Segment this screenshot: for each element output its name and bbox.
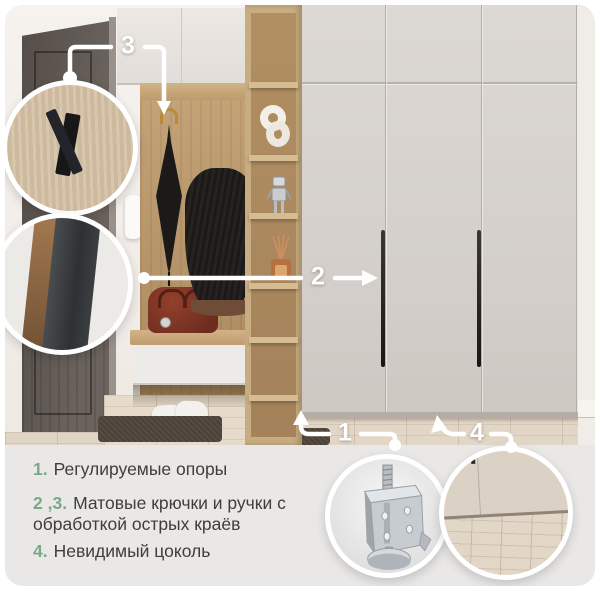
umbrella-tip xyxy=(168,272,170,286)
wardrobe xyxy=(302,5,578,418)
wood-soffit xyxy=(140,83,245,100)
ring-bottom xyxy=(266,121,290,147)
callout-label-2: 2 xyxy=(311,263,325,292)
callout-label-3: 3 xyxy=(121,32,135,61)
feature-number: 1. xyxy=(33,459,48,479)
cabinet-seam xyxy=(181,8,182,83)
wardrobe-handle-right xyxy=(477,230,481,367)
wardrobe-seam xyxy=(576,5,577,418)
brass-hook xyxy=(160,108,178,124)
right-wall xyxy=(578,5,595,445)
diffuser-label xyxy=(275,265,287,277)
feature-item: 1.Регулируемые опоры xyxy=(33,459,333,480)
hallway-photo xyxy=(5,5,595,445)
shelf xyxy=(249,283,298,289)
coat-hem xyxy=(191,300,253,316)
shelf xyxy=(249,337,298,343)
product-card: 1.Регулируемые опоры 2 ,3.Матовые крючки… xyxy=(5,5,595,586)
door-bottom-edge xyxy=(439,446,573,520)
doormat xyxy=(98,416,222,442)
adjustable-leg-image xyxy=(330,461,444,575)
feature-text: Регулируемые опоры xyxy=(54,459,228,479)
shelf-back xyxy=(251,13,296,437)
feature-text: Невидимый цоколь xyxy=(54,541,211,561)
umbrella xyxy=(150,108,190,308)
baseboard xyxy=(578,400,595,418)
umbrella-canopy xyxy=(152,124,186,274)
callout-label-1: 1 xyxy=(338,419,352,448)
intercom-device xyxy=(125,195,141,239)
shelf xyxy=(249,395,298,401)
feature-item: 2 ,3.Матовые крючки и ручки с обработкой… xyxy=(33,493,333,535)
plinth-closeup-inset xyxy=(439,446,573,580)
feature-item: 4.Невидимый цоколь xyxy=(33,541,333,562)
shelf-column xyxy=(245,5,302,445)
handle-notch xyxy=(470,450,475,464)
reed-diffuser xyxy=(263,233,299,283)
info-panel: 1.Регулируемые опоры 2 ,3.Матовые крючки… xyxy=(5,445,595,586)
door-seam xyxy=(476,446,481,515)
wardrobe-handle-left xyxy=(381,230,385,367)
shelf xyxy=(249,82,298,88)
feature-number: 2 ,3. xyxy=(33,493,67,513)
bench-drawer xyxy=(133,345,255,385)
hook-closeup-inset xyxy=(5,80,138,216)
feature-number: 4. xyxy=(33,541,48,561)
ring-sculpture xyxy=(258,105,290,149)
bag-charm xyxy=(160,317,171,328)
wardrobe-seam xyxy=(481,5,482,418)
support-leg-inset xyxy=(325,454,449,578)
upper-cabinets xyxy=(117,8,245,85)
callout-label-4: 4 xyxy=(470,419,484,448)
wardrobe-seam xyxy=(385,5,386,418)
shelf xyxy=(249,155,298,161)
floor-left xyxy=(5,432,104,445)
wardrobe-top-seam xyxy=(302,82,578,84)
feature-text: Матовые крючки и ручки с обработкой остр… xyxy=(33,493,286,534)
robot-figurine xyxy=(266,175,292,217)
